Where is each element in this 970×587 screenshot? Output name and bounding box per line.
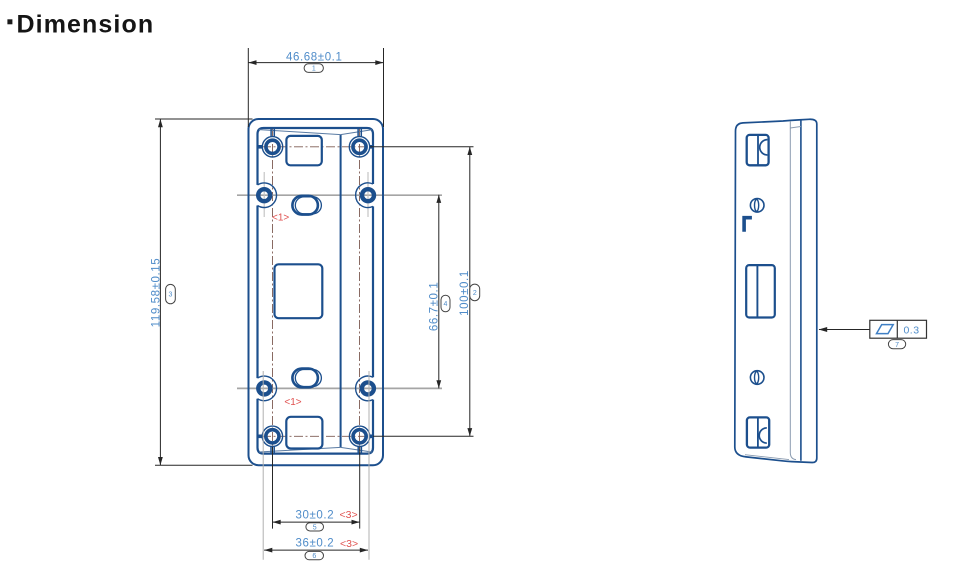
svg-text:0.3: 0.3 <box>903 324 919 336</box>
svg-text:36±0.2: 36±0.2 <box>296 538 335 550</box>
svg-text:66.7±0.1: 66.7±0.1 <box>429 282 441 331</box>
svg-text:<1>: <1> <box>272 213 289 224</box>
svg-text:3: 3 <box>169 292 173 299</box>
svg-text:Dimension: Dimension <box>17 11 155 39</box>
svg-text:119.58±0.15: 119.58±0.15 <box>151 258 163 328</box>
svg-text:30±0.2: 30±0.2 <box>296 509 335 521</box>
svg-text:100±0.1: 100±0.1 <box>459 270 471 316</box>
svg-text:5: 5 <box>313 524 317 531</box>
svg-text:<1>: <1> <box>284 397 301 408</box>
svg-text:4: 4 <box>444 301 448 308</box>
svg-text:<3>: <3> <box>340 509 358 521</box>
svg-text:6: 6 <box>312 553 316 560</box>
svg-text:<3>: <3> <box>340 538 358 550</box>
svg-text:2: 2 <box>473 290 477 297</box>
svg-text:46.68±0.1: 46.68±0.1 <box>286 51 342 63</box>
svg-text:7: 7 <box>895 342 899 349</box>
svg-text:1: 1 <box>312 66 316 73</box>
